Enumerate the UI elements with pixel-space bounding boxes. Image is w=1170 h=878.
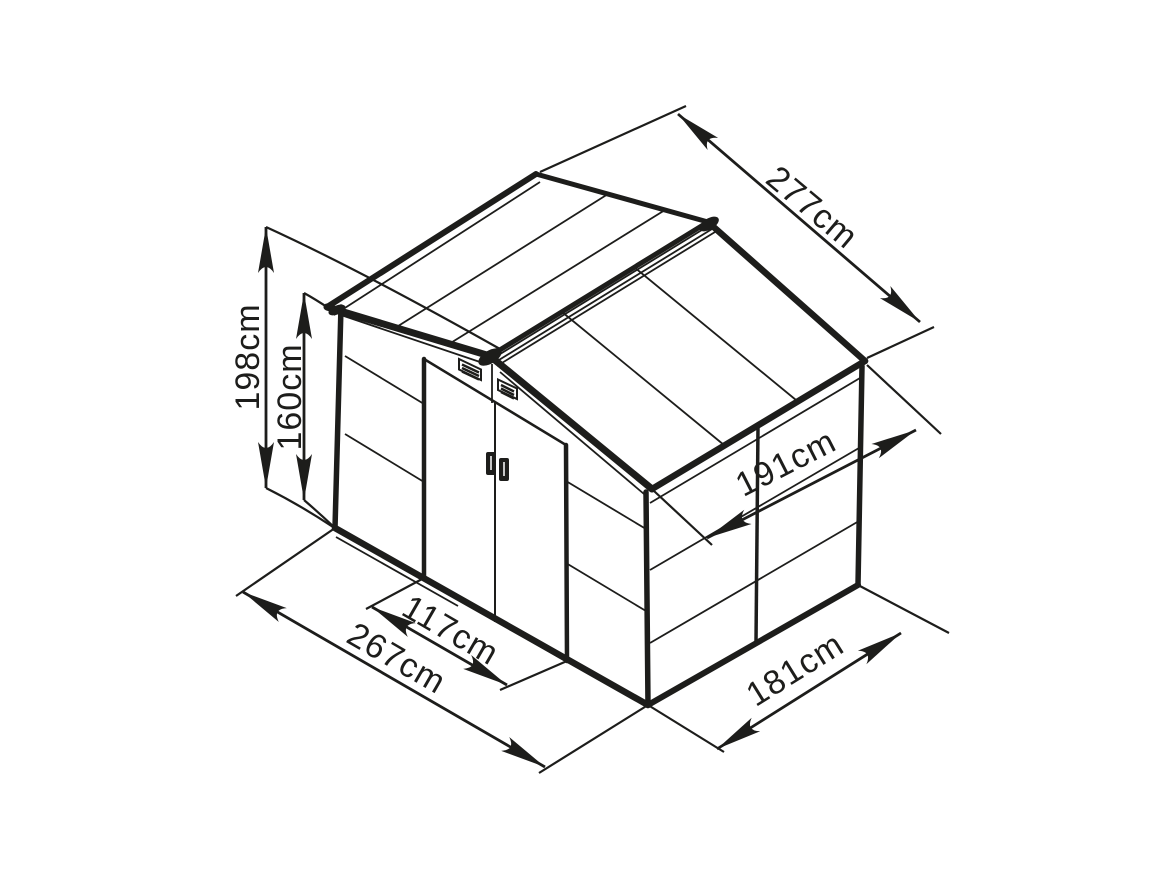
roof-edge-front-left [327,307,490,356]
dimension-roof-depth: 191cm [654,365,941,545]
extension-line-right [500,661,567,690]
front-base-lower-line [336,537,458,606]
gable-vent-right [498,380,517,400]
dimension-roof-length: 277cm [540,106,934,358]
extension-line-front [654,491,712,545]
rear-right-corner-post [858,366,862,585]
extension-line-rear [858,585,949,633]
extension-line-upper [540,106,686,172]
roof-edge-rear-left [536,174,708,222]
dimension-base-depth: 181cm [648,585,949,752]
front-left-corner-post [335,307,341,528]
leader-top [304,293,330,309]
dimension-base-width: 267cm [236,528,648,773]
roof-seam-right-2 [634,267,796,400]
dim-label-total-height: 198cm [229,303,267,410]
extension-line-lower [867,327,934,358]
extension-line-right [539,705,648,773]
door-handle-icon [486,452,509,481]
front-wall-seam-left-2 [345,434,424,482]
extension-line-left [236,528,335,596]
roof-edge-front-right [490,356,652,489]
roof-ridge [490,222,708,356]
leader-bottom [266,488,333,527]
roof-seam-right-1 [562,312,724,445]
door-jamb-right [566,445,567,661]
leader-top [266,227,500,349]
front-wall-seam-right-1 [566,481,646,529]
front-wall-seam-right-2 [566,563,646,611]
extension-line-front [648,705,724,752]
roof-eaves-inner-line [334,182,540,315]
roof-edge-left-eaves [327,174,536,307]
shed-isometric-dimension-diagram: 198cm 160cm 277cm 191cm 117cm 267cm 181c… [0,0,1170,878]
dimension-eaves-height: 160cm [271,293,334,527]
extension-line-rear [867,365,941,434]
fascia-front-right [500,372,644,494]
dim-label-roof-length: 277cm [759,159,865,257]
ridge-cap-line-1 [492,225,710,359]
front-right-corner-post [646,492,648,705]
front-wall-seam-left-1 [345,356,424,404]
ridge-cap-line-3 [497,232,715,366]
dim-label-eaves-height: 160cm [271,343,309,450]
dimension-total-height: 198cm [229,227,500,527]
leader-bottom [304,500,334,527]
